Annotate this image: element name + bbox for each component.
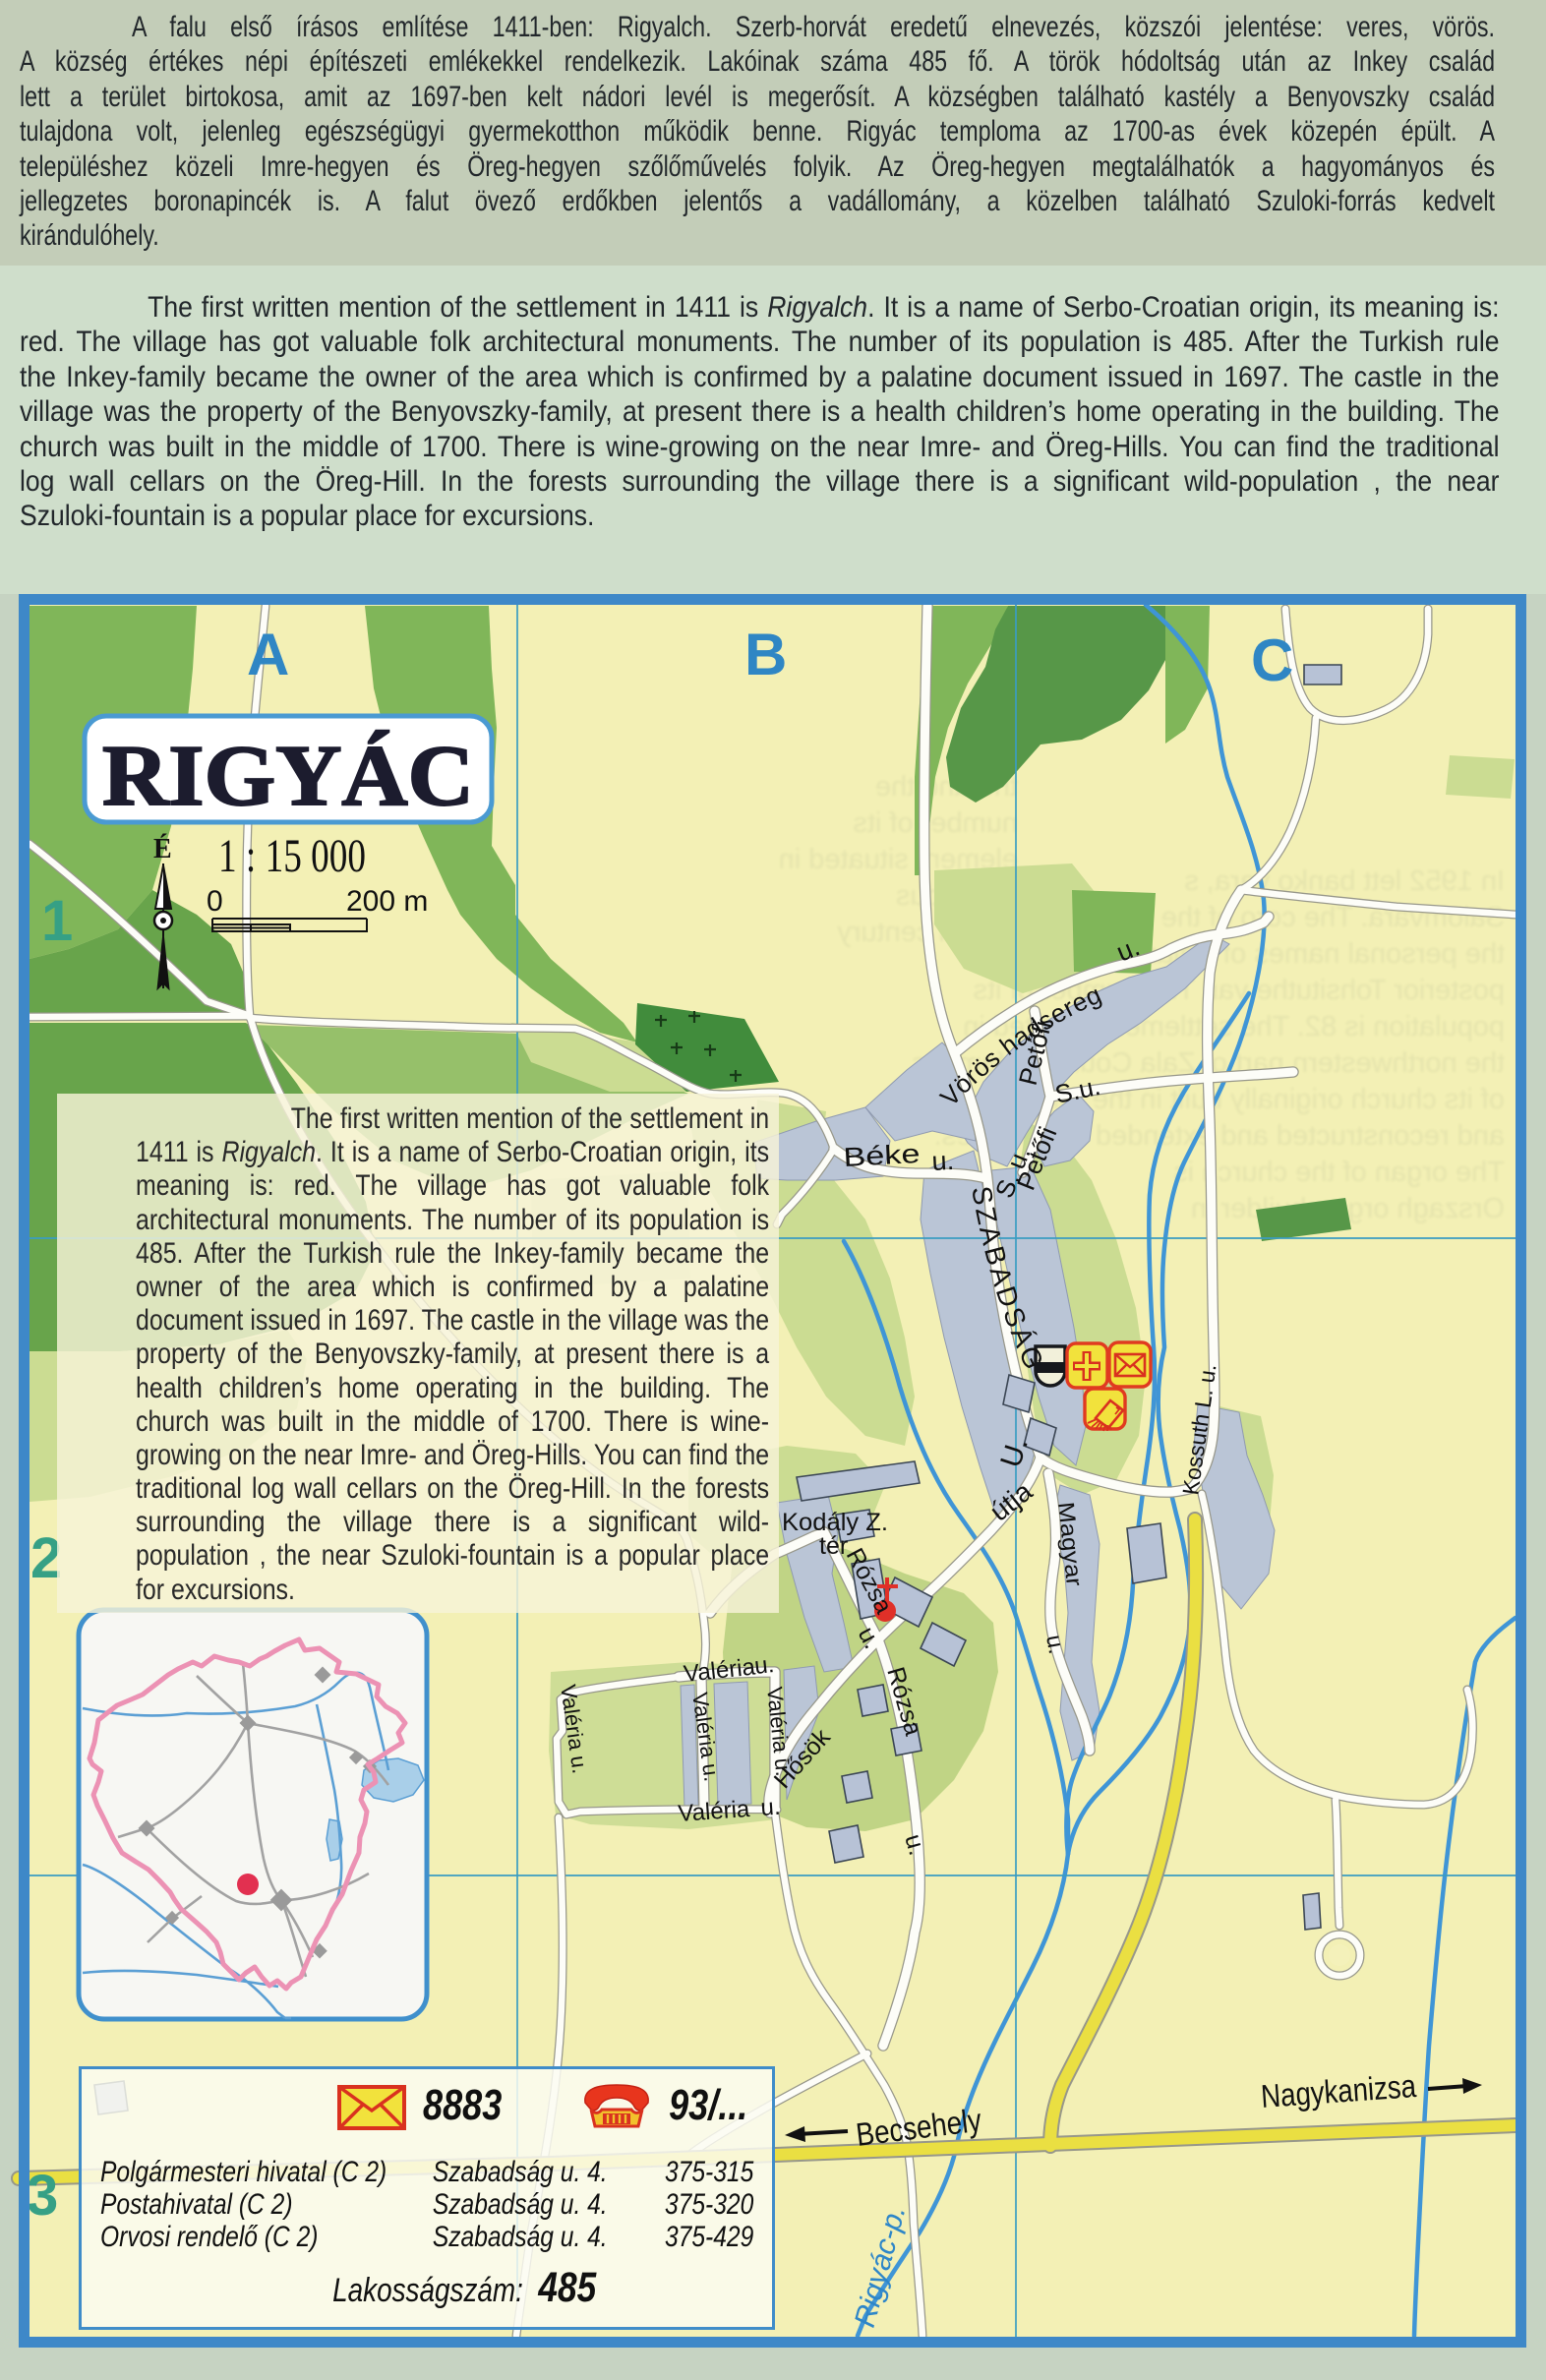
svg-text:1: 1 — [41, 889, 73, 953]
svg-text:number of its: number of its — [853, 807, 1018, 839]
svg-text:Béke: Béke — [843, 1139, 921, 1172]
svg-text:u.: u. — [760, 1794, 782, 1821]
svg-text:B: B — [744, 622, 787, 687]
svg-text:In 1952 lett banko vara,: In 1952 lett banko vara, s — [1184, 865, 1505, 897]
svg-text:RIGYÁC: RIGYÁC — [102, 729, 474, 824]
svg-text:The organ of the church i: The organ of the church is — [1173, 1157, 1505, 1188]
svg-text:A: A — [247, 622, 289, 687]
svg-text:É: É — [153, 834, 172, 864]
svg-text:3: 3 — [27, 2164, 58, 2228]
svg-text:200 m: 200 m — [346, 885, 428, 918]
svg-text:0: 0 — [207, 885, 223, 918]
svg-text:Valéria: Valéria — [678, 1796, 751, 1827]
svg-text:u.: u. — [931, 1146, 955, 1176]
svg-text:C: C — [1251, 627, 1293, 693]
svg-text:1 : 15 000: 1 : 15 000 — [218, 830, 366, 882]
svg-text:u.: u. — [753, 1651, 776, 1680]
